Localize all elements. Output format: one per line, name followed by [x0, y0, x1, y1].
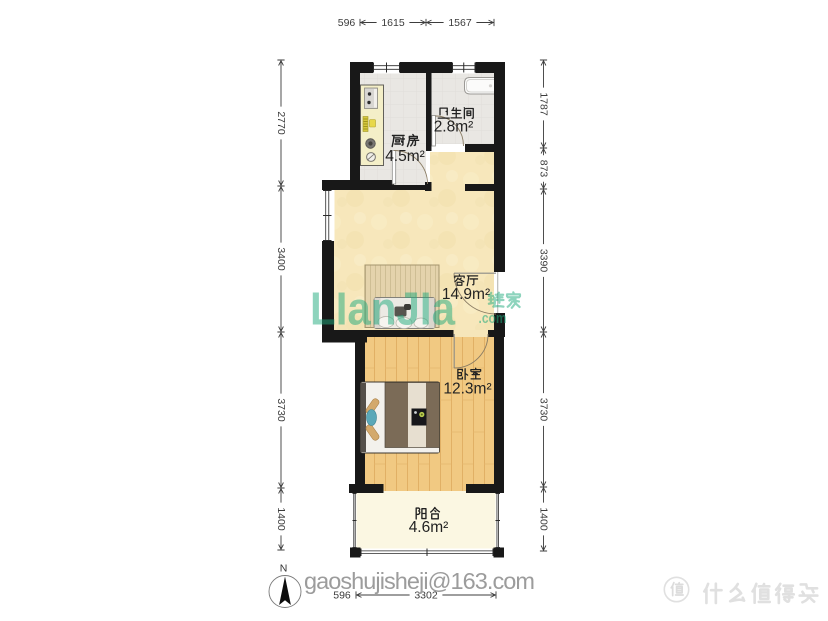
svg-text:3730: 3730 [275, 398, 287, 422]
svg-text:2770: 2770 [275, 111, 287, 135]
svg-text:1787: 1787 [538, 92, 550, 116]
svg-text:3730: 3730 [538, 398, 550, 422]
svg-text:N: N [280, 563, 288, 575]
svg-text:4.6m²: 4.6m² [409, 519, 449, 536]
svg-text:3400: 3400 [275, 247, 287, 271]
svg-text:gaoshujisheji@163.com: gaoshujisheji@163.com [304, 568, 535, 594]
svg-text:.com: .com [479, 310, 507, 327]
svg-text:1567: 1567 [448, 17, 472, 29]
svg-text:2.8m²: 2.8m² [434, 119, 474, 136]
svg-text:1615: 1615 [381, 17, 405, 29]
svg-text:596: 596 [338, 17, 356, 29]
svg-text:12.3m²: 12.3m² [443, 381, 491, 398]
svg-text:1400: 1400 [538, 507, 550, 531]
svg-text:LIanJIa: LIanJIa [310, 283, 455, 335]
svg-text:1400: 1400 [275, 507, 287, 531]
svg-text:3390: 3390 [538, 249, 550, 273]
svg-text:873: 873 [538, 160, 550, 178]
svg-text:4.5m²: 4.5m² [385, 148, 425, 165]
